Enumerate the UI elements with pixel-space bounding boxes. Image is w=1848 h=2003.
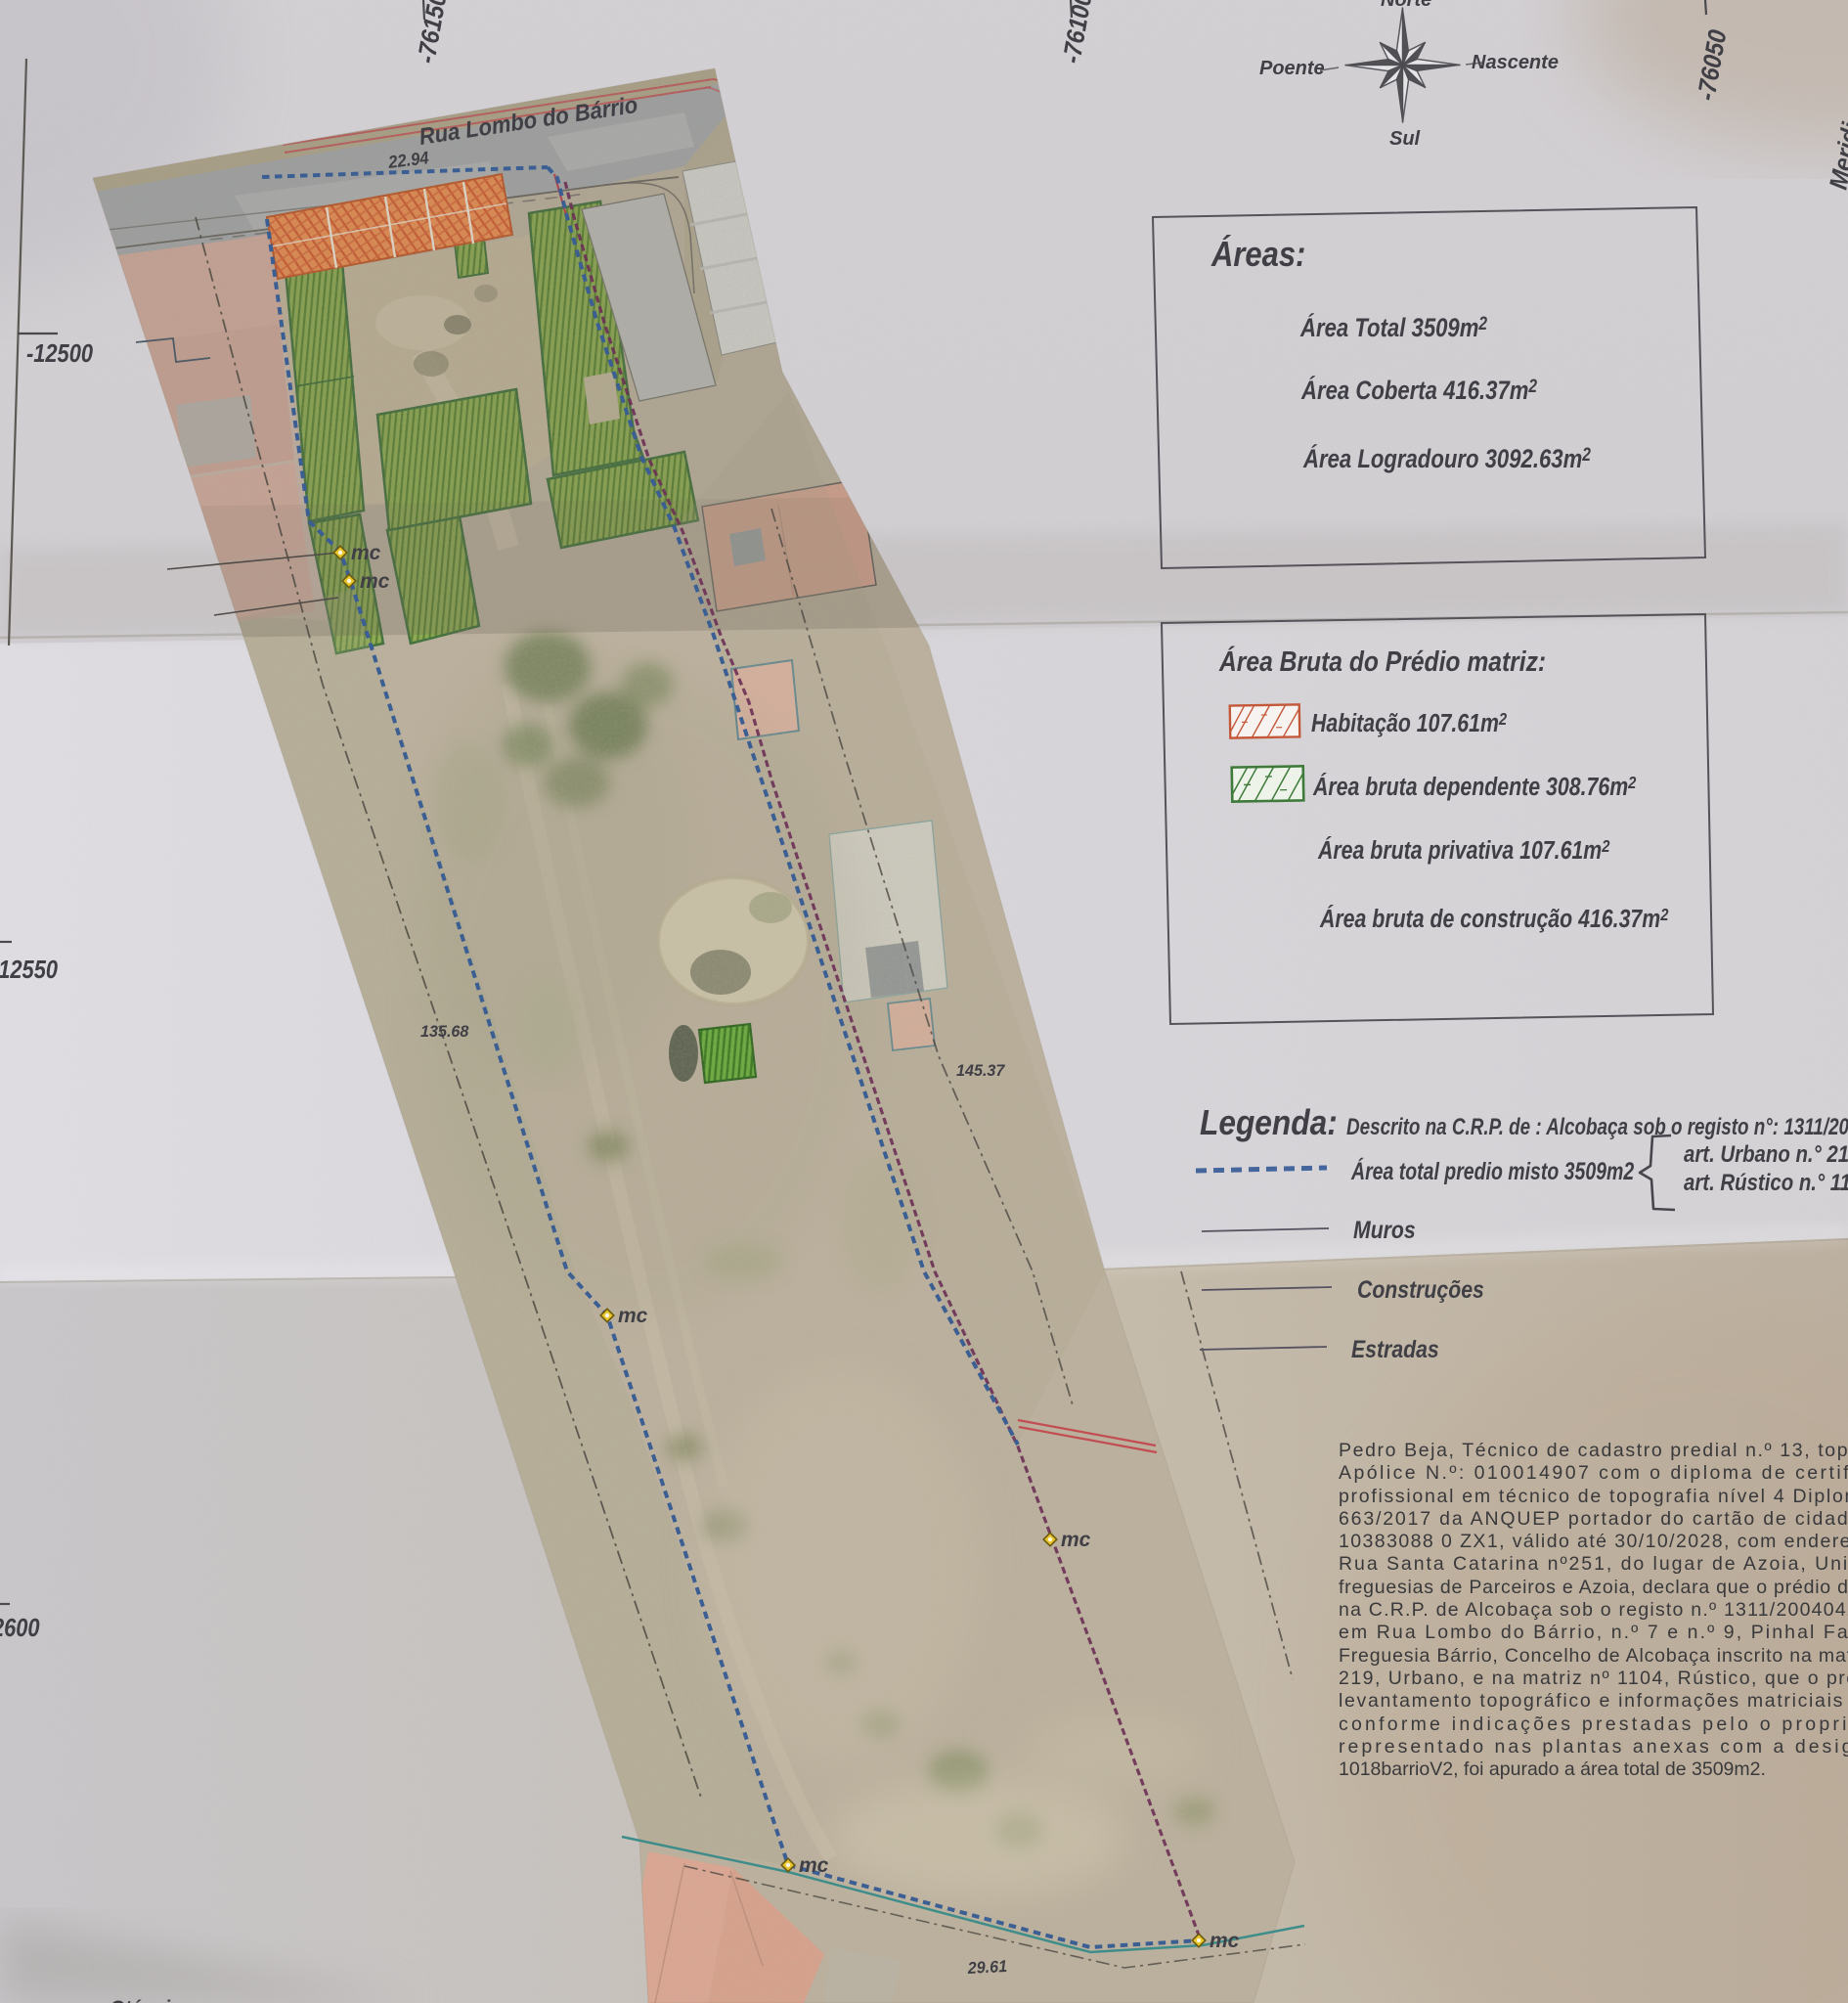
svg-text:Área Bruta do Prédio matriz:: Área Bruta do Prédio matriz: [1218,645,1546,677]
svg-text:Poente: Poente [1259,58,1325,79]
svg-text:-12500: -12500 [26,339,94,368]
svg-text:-12550: -12550 [0,956,59,984]
svg-text:Norte: Norte [1381,0,1431,11]
svg-text:Apólice N.º: 010014907 com o d: Apólice N.º: 010014907 com o diploma de … [1339,1462,1848,1484]
svg-text:levantamento topográfico e inf: levantamento topográfico e informações m… [1339,1690,1848,1712]
svg-text:profissional em técnico de top: profissional em técnico de topografia ní… [1339,1486,1848,1507]
svg-text:Estradas: Estradas [1351,1335,1439,1362]
svg-text:Legenda:: Legenda: [1200,1103,1338,1142]
svg-text:freguesias de Parceiros e Azoi: freguesias de Parceiros e Azoia, declara… [1339,1577,1848,1598]
svg-text:Área Total 3509m2: Área Total 3509m2 [1299,313,1487,343]
svg-text:mc: mc [360,570,390,593]
svg-text:10383088 0 ZX1, válido até 30/: 10383088 0 ZX1, válido até 30/10/2028, c… [1339,1531,1848,1552]
svg-text:mc: mc [799,1854,829,1877]
svg-text:29.61: 29.61 [966,1957,1007,1979]
svg-text:art. Urbano n.° 219: art. Urbano n.° 219 [1684,1140,1848,1167]
svg-text:663/2017 da ANQUEP portador do: 663/2017 da ANQUEP portador do cartão de… [1339,1508,1848,1530]
svg-text:mc: mc [351,542,381,564]
svg-text:145.37: 145.37 [956,1061,1005,1080]
svg-text:135.68: 135.68 [420,1022,469,1041]
svg-text:mc: mc [618,1305,648,1327]
svg-text:Muros: Muros [1353,1216,1416,1243]
svg-text:Área total predio misto 3509m2: Área total predio misto 3509m2 [1350,1158,1635,1185]
svg-text:mc: mc [1210,1930,1240,1952]
svg-text:Áreas:: Áreas: [1210,235,1305,275]
svg-text:1018barrioV2, foi apurado a ár: 1018barrioV2, foi apurado a área total d… [1339,1758,1766,1780]
svg-text:art. Rústico n.° 1104: art. Rústico n.° 1104 [1684,1169,1848,1195]
svg-text:Área bruta dependente 308.76m2: Área bruta dependente 308.76m2 [1312,772,1636,802]
svg-text:Sul: Sul [1389,128,1421,150]
svg-text:Área Logradouro 3092.63m2: Área Logradouro 3092.63m2 [1302,444,1591,474]
svg-text:Otécnic: Otécnic [110,1997,182,2003]
svg-text:Construções: Construções [1357,1275,1484,1303]
svg-text:Descrito na C.R.P. de : Alcoba: Descrito na C.R.P. de : Alcobaça sob o r… [1346,1114,1848,1140]
svg-text:Habitação 107.61m2: Habitação 107.61m2 [1311,709,1507,738]
svg-text:219, Urbano, e na matriz nº 11: 219, Urbano, e na matriz nº 1104, Rústic… [1339,1668,1848,1689]
svg-text:Área Coberta 416.37m2: Área Coberta 416.37m2 [1300,376,1537,406]
svg-text:2600: 2600 [0,1614,40,1642]
svg-text:na C.R.P. de Alcobaça sob o re: na C.R.P. de Alcobaça sob o registo n.º … [1339,1599,1848,1621]
svg-text:mc: mc [1061,1529,1091,1551]
svg-text:Freguesia Bárrio, Concelho de: Freguesia Bárrio, Concelho de Alcobaça i… [1339,1645,1848,1667]
svg-text:Rua Santa Catarina nº251, do l: Rua Santa Catarina nº251, do lugar de Az… [1339,1553,1848,1575]
svg-text:Área bruta de construção 416.3: Área bruta de construção 416.37m2 [1319,904,1668,934]
svg-text:Área bruta privativa 107.61m2: Área bruta privativa 107.61m2 [1317,835,1609,866]
svg-text:em Rua Lombo do Bárrio, n.º 7: em Rua Lombo do Bárrio, n.º 7 e n.º 9, P… [1339,1622,1848,1643]
svg-text:Nascente: Nascente [1472,52,1559,73]
